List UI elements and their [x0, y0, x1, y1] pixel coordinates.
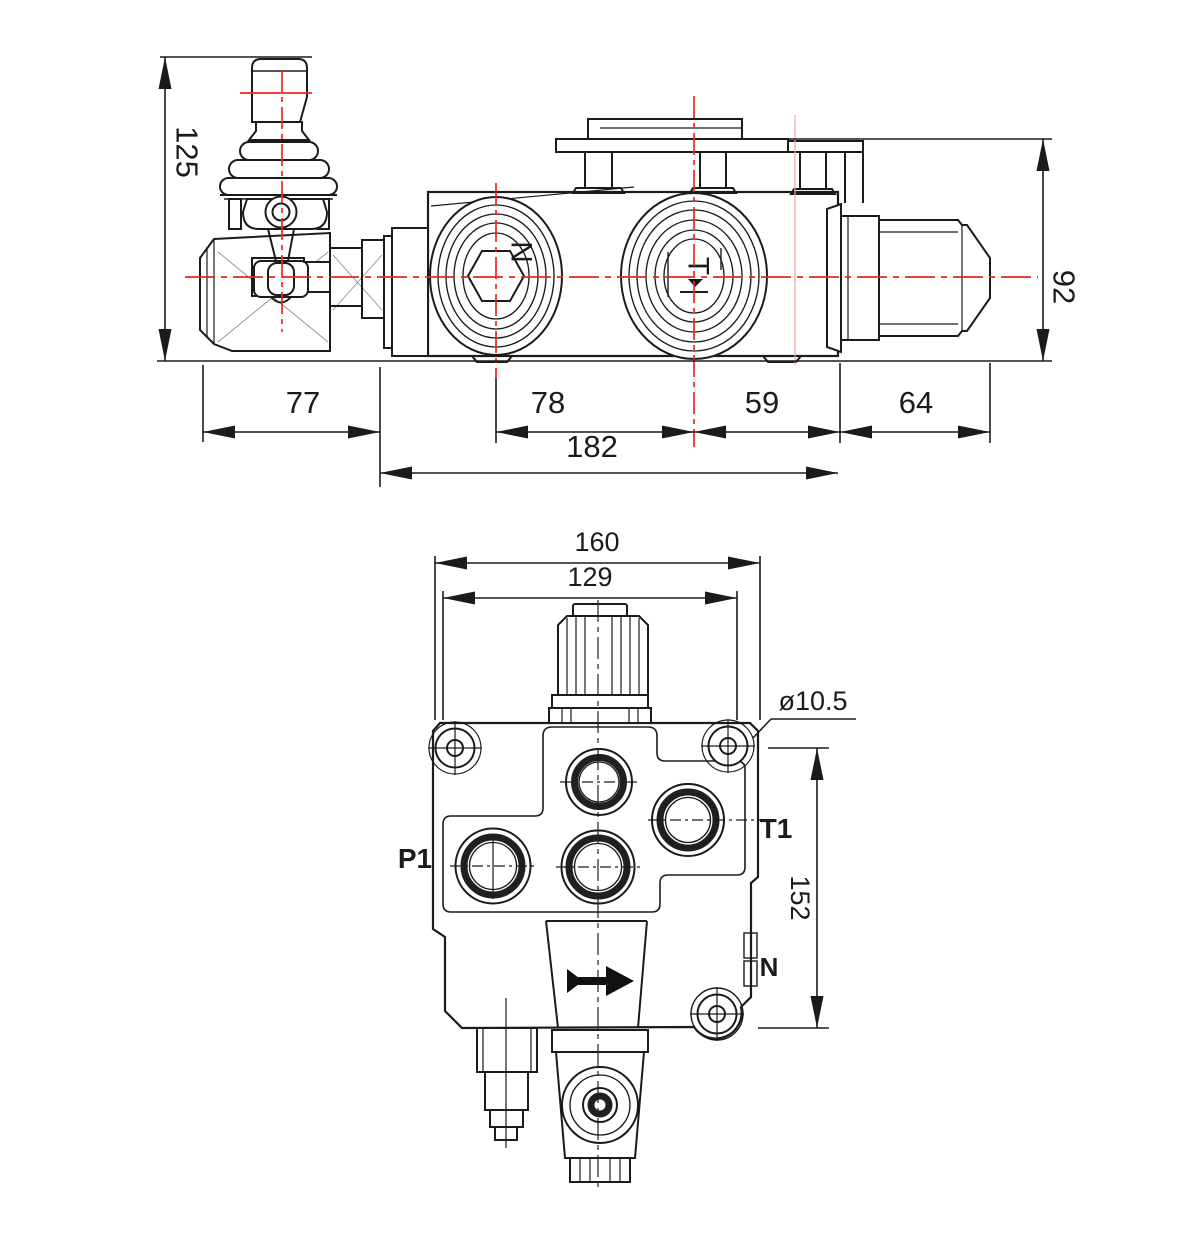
dim-182: 182	[566, 429, 618, 464]
label-p1: P1	[398, 843, 432, 874]
port-t-marking: T	[682, 257, 715, 275]
spool-ball-joint	[254, 261, 308, 303]
hole-diameter-callout: ø10.5	[753, 686, 856, 738]
end-view: P1 T1 N 160 129 ø10.5 152	[398, 527, 856, 1192]
port-n-marking: N	[505, 241, 538, 263]
lever-handle	[249, 59, 309, 140]
adjustment-knob	[549, 604, 651, 723]
dim-59: 59	[745, 385, 779, 420]
dim-129: 129	[567, 562, 612, 592]
label-n: N	[760, 952, 779, 982]
side-view: N T	[157, 57, 1082, 487]
dim-125: 125	[170, 126, 205, 178]
drawing-page: N T	[0, 0, 1201, 1249]
left-end-cap	[384, 228, 428, 356]
dim-77: 77	[286, 385, 320, 420]
dim-64: 64	[899, 385, 933, 420]
dim-hole-dia: ø10.5	[778, 686, 847, 716]
valve-dimension-drawing: N T	[0, 0, 1201, 1249]
dim-160: 160	[574, 527, 619, 557]
outlet-fitting	[827, 204, 990, 352]
dim-152: 152	[785, 875, 815, 920]
relief-valve	[552, 1030, 648, 1182]
dim-92: 92	[1047, 270, 1082, 304]
dim-78: 78	[531, 385, 565, 420]
label-t1: T1	[760, 813, 793, 844]
